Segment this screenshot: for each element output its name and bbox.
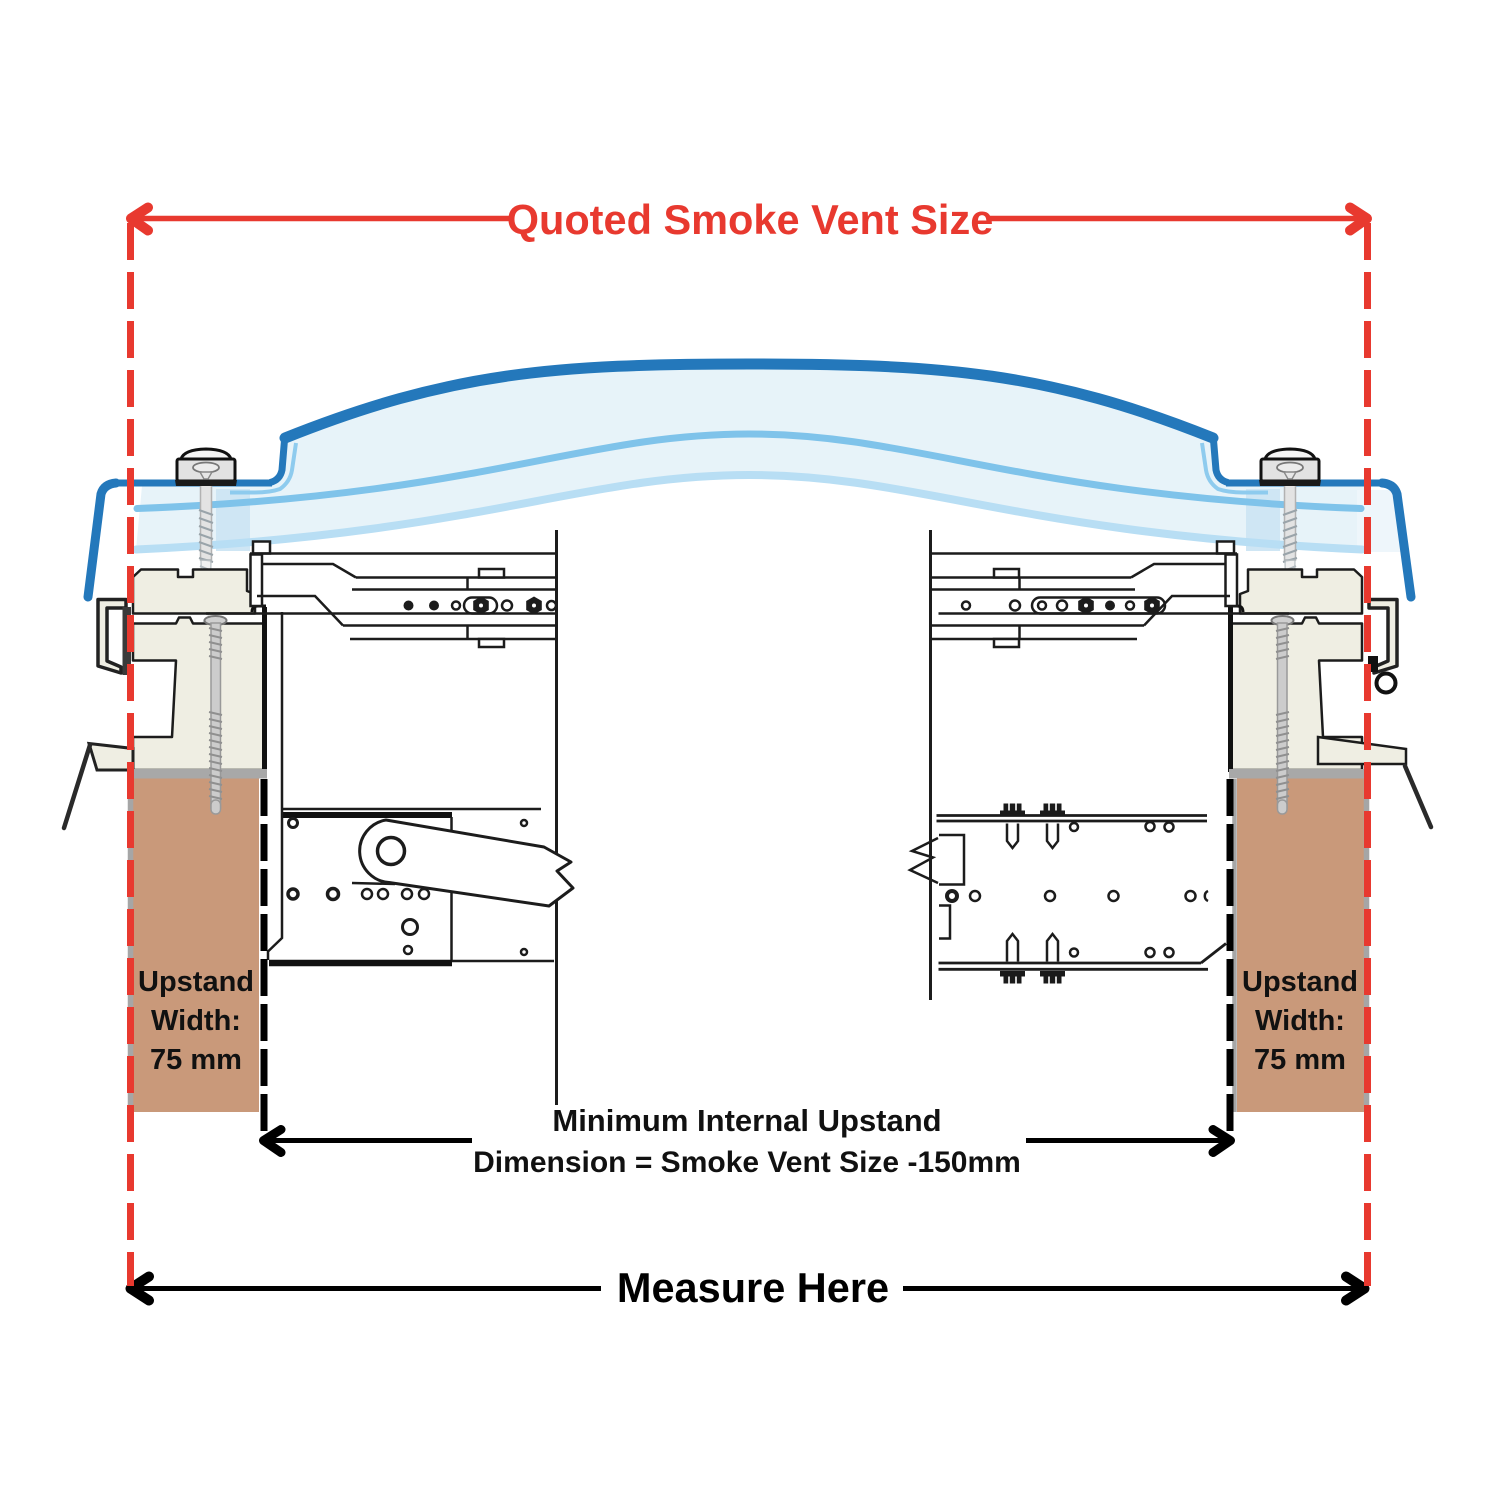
svg-text:Measure Here: Measure Here: [617, 1264, 889, 1311]
svg-text:Upstand: Upstand: [138, 966, 254, 998]
svg-text:Quoted Smoke Vent Size: Quoted Smoke Vent Size: [507, 196, 994, 243]
svg-text:75 mm: 75 mm: [1254, 1044, 1346, 1076]
svg-text:Minimum Internal Upstand: Minimum Internal Upstand: [552, 1103, 941, 1138]
svg-text:Dimension = Smoke Vent Size -1: Dimension = Smoke Vent Size -150mm: [473, 1146, 1021, 1179]
svg-text:75 mm: 75 mm: [150, 1044, 242, 1076]
svg-text:Width:: Width:: [1255, 1005, 1345, 1037]
svg-text:Upstand: Upstand: [1242, 966, 1358, 998]
svg-text:Width:: Width:: [151, 1005, 241, 1037]
